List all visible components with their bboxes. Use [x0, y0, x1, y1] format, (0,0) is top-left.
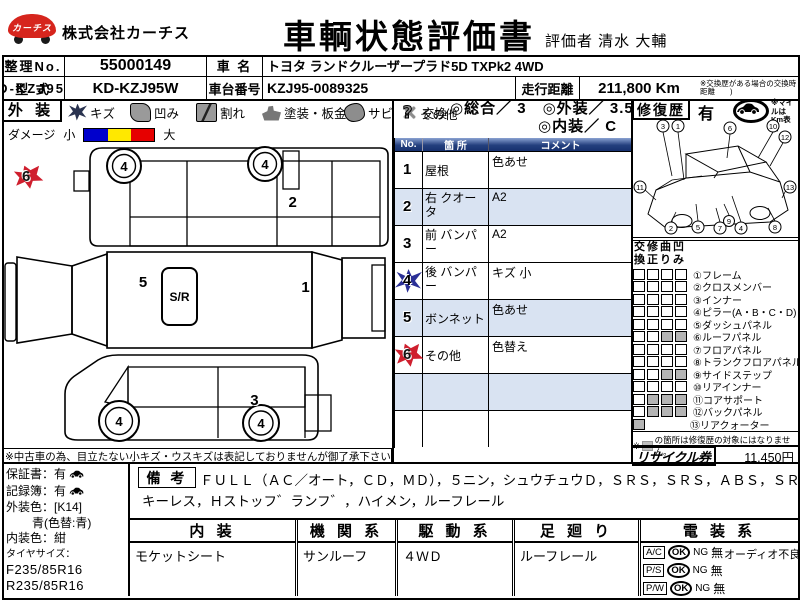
car-name-label: 車 名	[207, 55, 263, 77]
legend-scratch: キズ	[68, 102, 115, 122]
comment-text: A2	[489, 226, 632, 262]
damage-seg-yellow	[108, 129, 131, 141]
col-no: No.	[395, 138, 423, 151]
engine-header: 機 関 系	[298, 520, 395, 543]
exterior-color-line: 外装色：[K14]	[6, 500, 128, 516]
part-name: 後 バンパー	[423, 263, 489, 299]
checkbox	[647, 356, 659, 367]
comment-table-header: No. 箇 所 コメント	[395, 138, 632, 152]
suspension-header: 足 廻 り	[515, 520, 638, 543]
checkbox	[675, 369, 687, 380]
checkbox	[675, 294, 687, 305]
checkbox	[633, 406, 645, 417]
checkbox	[675, 381, 687, 392]
sunroof-box: S/R	[161, 267, 198, 326]
seiri-no-label: 整理No.	[2, 55, 65, 77]
electrical-body: A/C OK NG 無 P/S OK NG 無 P/W OK NG 無 オ	[641, 543, 798, 597]
electrical-header: 電 装 系	[641, 520, 798, 543]
engine-value: サンルーフ	[298, 543, 395, 565]
ng-label: NG	[695, 583, 710, 594]
ok-circled: OK	[667, 563, 689, 578]
audio-defect-note: オーディオ不良	[724, 546, 798, 562]
legend-paint: 塗装・板金	[262, 102, 347, 122]
row-marker-icon: 4	[395, 267, 422, 295]
checkbox	[675, 406, 687, 417]
damage-seg-red	[131, 129, 154, 141]
engine-column: 機 関 系 サンルーフ	[298, 520, 398, 596]
exterior-color-line2: 青(色替:青)	[6, 516, 128, 532]
vehicle-evaluation-sheet: カーチス 株式会社カーチス 車輌状態評価書 評価者 清水 大輔 整理No. 55…	[0, 0, 800, 600]
col-comment: コメント	[489, 138, 632, 151]
chassis-label: 車台番号	[207, 77, 263, 99]
bottom-systems-table: 内 装 モケットシート 機 関 系 サンルーフ 駆 動 系 ４ＷＤ 足 廻 り …	[130, 518, 798, 596]
elec-item-label: P/S	[643, 564, 664, 577]
wf-num-6: 6	[728, 124, 732, 133]
chassis-value: KZJ95-0089325	[263, 77, 516, 99]
wheel-number: 4	[257, 416, 265, 431]
ng-label: NG	[693, 565, 708, 576]
checkbox	[675, 394, 687, 405]
rating-interior: ◎内装／ C	[538, 118, 634, 136]
comment-row: 3 前 バンパー A2	[395, 226, 632, 263]
comment-text: 色あせ	[489, 152, 632, 188]
legend-rust: サビ	[344, 102, 393, 122]
checkbox	[661, 269, 673, 280]
legend-label: 塗装・板金	[284, 103, 347, 122]
record-line: 記録簿：有	[6, 484, 128, 501]
comment-row-empty	[395, 374, 632, 411]
drivetrain-header: 駆 動 系	[398, 520, 512, 543]
wf-num-1: 1	[676, 122, 680, 131]
checkbox	[633, 419, 645, 430]
checkbox	[661, 294, 673, 305]
ratings: ◎総合／ 3 ◎外装／ 3.5 ◎内装／ C	[450, 100, 634, 136]
vehicle-info-table: 整理No. 55000149 車 名 トヨタ ランドクルーザープラド5D TXP…	[2, 55, 798, 101]
damage-large-label: 大	[163, 126, 175, 143]
model-label: 型 式	[2, 77, 65, 99]
checkbox	[661, 331, 673, 342]
mileage-value: 211,800 Km	[580, 77, 698, 99]
legend-crack: 割れ	[196, 102, 245, 122]
crack-icon	[196, 103, 217, 122]
part-name: 右 クオータ	[423, 189, 489, 225]
col-dent: 凹み	[672, 241, 685, 267]
checkbox	[633, 331, 645, 342]
other-icon: ?	[398, 105, 417, 122]
checkbox	[633, 369, 645, 380]
checkbox	[661, 394, 673, 405]
checkbox	[675, 281, 687, 292]
checkbox	[633, 281, 645, 292]
electrical-row: P/S OK NG 無	[641, 561, 798, 579]
checkbox	[647, 269, 659, 280]
wf-num-8: 8	[773, 223, 777, 232]
marker-2-other-icon: 2	[280, 189, 308, 217]
drivetrain-column: 駆 動 系 ４ＷＤ	[398, 520, 515, 596]
comment-row: 2 右 クオータ A2	[395, 189, 632, 226]
col-bend: 曲り	[659, 241, 672, 267]
part-name: 屋根	[423, 152, 489, 188]
repair-history-label: 修復歴	[632, 99, 690, 120]
comment-text: 色替え	[489, 337, 632, 373]
electrical-column: 電 装 系 A/C OK NG 無 P/S OK NG 無 P/W OK N	[641, 520, 798, 596]
curtis-logo: カーチス	[8, 12, 56, 44]
damage-gradient-bar	[83, 128, 155, 142]
checkbox	[633, 269, 645, 280]
remarks-line2: キーレス，Ｈストッフ゛ランフ゛，ハイメン，ルーフレール	[142, 490, 504, 510]
comment-row-empty	[395, 411, 632, 447]
checkbox	[675, 356, 687, 367]
legend-dent: 凹み	[130, 102, 179, 122]
car-stamp-icon	[69, 485, 84, 501]
marker-3-other-icon: 3	[242, 387, 270, 415]
legend-label: キズ	[90, 103, 115, 122]
checkbox	[647, 344, 659, 355]
marker-1-other-icon: 1	[293, 274, 321, 302]
car-damage-diagram: 4 4 4 4 S/R	[2, 145, 392, 448]
none-label: 無	[711, 544, 723, 561]
row-marker-icon: 5	[395, 304, 422, 332]
row-marker-icon: 3	[395, 230, 422, 258]
none-label: 無	[713, 580, 725, 597]
marker-5-other-icon: 5	[131, 269, 159, 297]
wf-num-7: 7	[718, 224, 722, 233]
checkbox	[647, 331, 659, 342]
wf-num-11: 11	[636, 183, 644, 192]
ok-circled: OK	[670, 581, 692, 596]
warranty-line: 保証書：有	[6, 467, 128, 484]
marker-number: 1	[301, 279, 309, 296]
damage-scale: ダメージ 小 大	[8, 126, 175, 143]
divider	[631, 99, 633, 463]
interior-color-line: 内装色：紺	[6, 531, 128, 547]
wf-num-9: 9	[727, 217, 731, 226]
wheel-number: 4	[115, 414, 123, 429]
checkbox	[661, 344, 673, 355]
dent-icon	[130, 103, 151, 122]
checkbox	[633, 381, 645, 392]
wf-num-12: 12	[781, 133, 789, 142]
elec-item-label: A/C	[643, 546, 665, 559]
suspension-column: 足 廻 り ルーフレール	[515, 520, 641, 596]
company-name: 株式会社カーチス	[62, 22, 190, 43]
wf-num-2: 2	[669, 224, 673, 233]
paint-icon	[262, 104, 281, 121]
car-silhouette-icon	[736, 102, 760, 115]
damage-small-label: 小	[63, 126, 75, 143]
drivetrain-value: ４ＷＤ	[398, 543, 512, 565]
part-name: その他	[423, 337, 489, 373]
suspension-value: ルーフレール	[515, 543, 638, 565]
used-car-note: ※中古車の為、目立たない小キズ・ウスキズは表記しておりませんが御了承下さい。	[2, 448, 392, 463]
tire-front: F235/85R16	[6, 562, 128, 578]
evaluator-name: 評価者 清水 大輔	[545, 30, 667, 51]
col-fix: 修正	[646, 241, 659, 267]
marker-number: 2	[288, 194, 296, 211]
checkbox	[661, 306, 673, 317]
checkbox	[647, 369, 659, 380]
checkbox	[633, 394, 645, 405]
checkbox	[647, 294, 659, 305]
remarks-line1: ＦＵＬＬ（ＡＣ／オート，ＣＤ，ＭＤ），５ニン，シュウチュウＤ，ＳＲＳ，ＳＲＳ，Ａ…	[200, 469, 800, 489]
checkbox	[661, 369, 673, 380]
checkbox	[661, 381, 673, 392]
checkbox	[633, 306, 645, 317]
checkbox	[647, 281, 659, 292]
wf-num-3: 3	[661, 122, 665, 131]
comment-row: 4 後 バンパー キズ 小	[395, 263, 632, 300]
checkbox	[647, 319, 659, 330]
exterior-section-label: 外 装	[2, 99, 62, 122]
row-marker-icon: 1	[395, 156, 422, 184]
tire-rear: R235/85R16	[6, 578, 128, 594]
none-label: 無	[711, 562, 723, 579]
checkbox	[633, 356, 645, 367]
wf-num-13: 13	[786, 183, 794, 192]
rust-icon	[344, 103, 365, 122]
checkbox	[647, 394, 659, 405]
ng-label: NG	[693, 547, 708, 558]
comment-text: 色あせ	[489, 300, 632, 336]
mileage-note: ※交換歴がある場合の交換時距離 )	[700, 77, 798, 99]
car-name-value: トヨタ ランドクルーザープラド5D TXPk2 4WD	[263, 55, 798, 77]
damage-label: ダメージ	[8, 126, 55, 143]
checkbox	[647, 406, 659, 417]
checkbox	[661, 281, 673, 292]
checkbox	[675, 306, 687, 317]
seiri-no-value: 55000149	[65, 55, 207, 77]
comment-text: A2	[489, 189, 632, 225]
part-name: 前 バンパー	[423, 226, 489, 262]
tire-size-label: タイヤサイズ：	[6, 547, 128, 563]
interior-header: 内 装	[130, 520, 295, 543]
elec-item-label: P/W	[643, 582, 667, 595]
checkbox	[661, 406, 673, 417]
checkbox	[647, 306, 659, 317]
part-name: ボンネット	[423, 300, 489, 336]
comment-text: キズ 小	[489, 263, 632, 299]
remarks-label: 備 考	[138, 467, 196, 488]
row-marker-icon: 6	[395, 341, 422, 369]
repair-row: ⑬リアクォーター	[633, 418, 800, 431]
comment-row: 6 その他 色替え	[395, 337, 632, 374]
row-marker-icon: 2	[395, 193, 422, 221]
checkbox	[675, 344, 687, 355]
col-replace: 交換	[633, 241, 646, 267]
legend-label: サビ	[368, 103, 393, 122]
rating-overall-exterior: ◎総合／ 3 ◎外装／ 3.5	[450, 100, 634, 118]
scratch-icon	[68, 104, 87, 121]
model-value: KD-KZJ95W	[65, 77, 207, 99]
logo-text: カーチス	[11, 21, 53, 34]
wf-num-5: 5	[696, 223, 700, 232]
repair-grid: ①フレーム ②クロスメンバー ③インナー ④ピラー(A・B・C・D) ⑤ダッシュ…	[633, 268, 800, 431]
divider	[2, 462, 796, 464]
checkbox	[675, 319, 687, 330]
checkbox	[647, 381, 659, 392]
wf-num-4: 4	[739, 224, 743, 233]
marker-number: 5	[139, 274, 147, 291]
checkbox	[675, 269, 687, 280]
legend-label: 割れ	[220, 103, 245, 122]
car-stamp-icon	[69, 468, 84, 484]
comment-row: 1 屋根 色あせ	[395, 152, 632, 189]
page-title: 車輌状態評価書	[283, 10, 535, 58]
checkbox	[675, 331, 687, 342]
vehicle-detail-panel: 保証書：有 記録簿：有 外装色：[K14] 青(色替:青) 内装色：紺 タイヤサ…	[2, 462, 130, 596]
wheel-number: 4	[261, 157, 269, 172]
legend-other: ? その他	[398, 103, 458, 123]
damage-seg-blue	[84, 129, 107, 141]
marker-number: 6	[22, 168, 30, 185]
checkbox	[633, 319, 645, 330]
checkbox	[633, 294, 645, 305]
marker-number: 3	[250, 392, 258, 409]
wheel-number: 4	[120, 159, 128, 174]
comment-table: No. 箇 所 コメント 1 屋根 色あせ 2 右 クオータ A2 3 前 バン…	[393, 138, 632, 448]
ok-circled: OK	[668, 545, 690, 560]
comment-row: 5 ボンネット 色あせ	[395, 300, 632, 337]
checkbox	[661, 319, 673, 330]
divider	[632, 237, 798, 238]
repair-location-diagram: 3 1 6 10 12 11 13 2 5 7 9 4 8	[632, 118, 798, 238]
interior-column: 内 装 モケットシート	[130, 520, 298, 596]
interior-value: モケットシート	[130, 543, 295, 565]
divider	[392, 99, 394, 463]
checkbox	[633, 344, 645, 355]
legend-label: 凹み	[154, 103, 179, 122]
wf-num-10: 10	[769, 122, 777, 131]
part-label: ⑬リアクォーター	[690, 417, 770, 432]
mileage-label: 走行距離	[516, 77, 580, 99]
checkbox	[661, 356, 673, 367]
remarks-section: 備 考 ＦＵＬＬ（ＡＣ／オート，ＣＤ，ＭＤ），５ニン，シュウチュウＤ，ＳＲＳ，Ｓ…	[130, 462, 798, 518]
marker-6-rust-icon: 6	[14, 163, 42, 191]
col-part: 箇 所	[423, 138, 489, 151]
repair-grid-header: 交換 修正 曲り 凹み	[633, 240, 798, 267]
electrical-row: P/W OK NG 無	[641, 579, 798, 597]
